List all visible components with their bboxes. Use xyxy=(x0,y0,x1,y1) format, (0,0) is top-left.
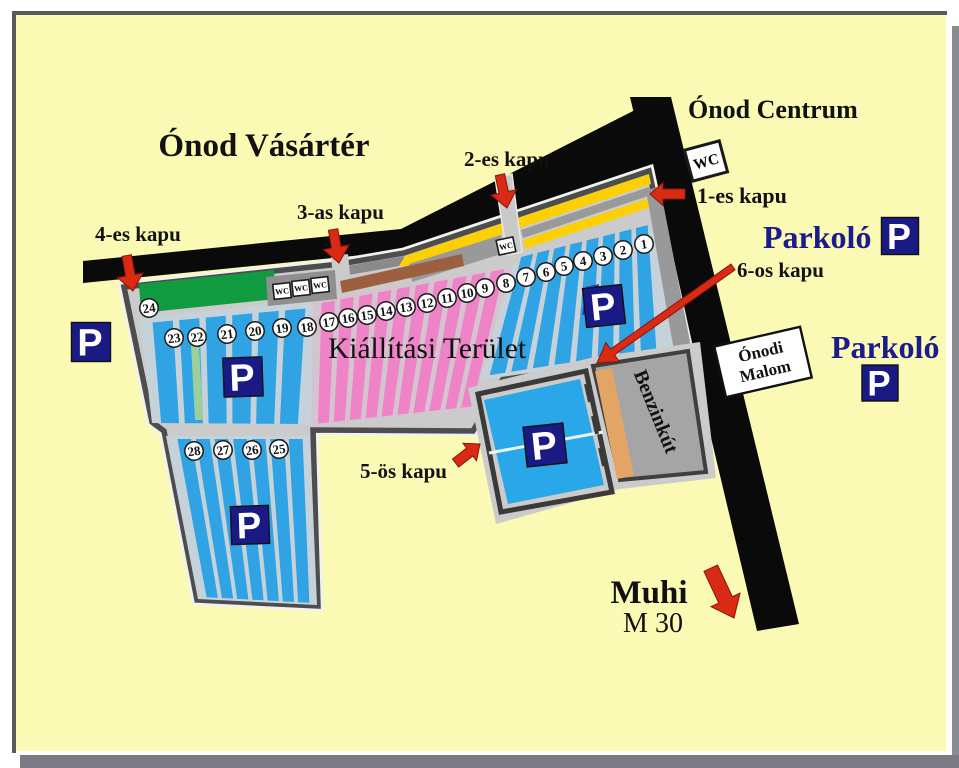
svg-text:27: 27 xyxy=(216,442,231,459)
svg-text:Parkoló: Parkoló xyxy=(763,219,871,255)
svg-text:4-es kapu: 4-es kapu xyxy=(95,222,181,246)
svg-text:21: 21 xyxy=(220,326,235,343)
svg-text:22: 22 xyxy=(190,329,205,346)
svg-text:26: 26 xyxy=(245,442,260,459)
svg-text:3-as kapu: 3-as kapu xyxy=(297,200,384,224)
svg-text:25: 25 xyxy=(272,441,287,458)
svg-text:P: P xyxy=(887,217,911,257)
svg-text:13: 13 xyxy=(399,299,414,316)
svg-text:16: 16 xyxy=(341,310,356,327)
svg-text:12: 12 xyxy=(420,295,435,312)
svg-text:1-es kapu: 1-es kapu xyxy=(697,183,787,208)
svg-text:P: P xyxy=(236,505,262,547)
svg-text:6-os kapu: 6-os kapu xyxy=(737,258,824,282)
svg-text:2-es kapu: 2-es kapu xyxy=(464,147,550,171)
svg-text:Kiállítási Terület: Kiállítási Terület xyxy=(328,333,527,365)
svg-text:17: 17 xyxy=(322,314,337,331)
svg-text:P: P xyxy=(77,322,102,364)
svg-text:P: P xyxy=(529,424,559,469)
svg-text:10: 10 xyxy=(460,285,475,302)
svg-text:Ónod Vásártér: Ónod Vásártér xyxy=(158,126,369,164)
svg-text:M 30: M 30 xyxy=(623,608,683,639)
svg-text:15: 15 xyxy=(360,307,375,324)
svg-text:23: 23 xyxy=(167,330,182,347)
svg-text:P: P xyxy=(588,285,617,329)
svg-text:5-ös kapu: 5-ös kapu xyxy=(360,459,447,483)
svg-text:24: 24 xyxy=(142,300,157,317)
svg-text:WC: WC xyxy=(275,286,290,296)
svg-text:Muhi: Muhi xyxy=(610,575,687,611)
svg-text:Ónod Centrum: Ónod Centrum xyxy=(688,95,858,124)
svg-text:28: 28 xyxy=(187,443,202,460)
svg-text:14: 14 xyxy=(379,303,394,320)
svg-text:P: P xyxy=(229,357,256,400)
svg-text:WC: WC xyxy=(294,283,309,293)
svg-text:20: 20 xyxy=(248,323,263,340)
svg-text:P: P xyxy=(867,364,890,403)
svg-text:19: 19 xyxy=(275,320,290,337)
svg-text:WC: WC xyxy=(313,280,328,290)
svg-text:Parkoló: Parkoló xyxy=(831,329,939,365)
svg-text:18: 18 xyxy=(300,319,315,336)
svg-text:11: 11 xyxy=(440,290,454,307)
